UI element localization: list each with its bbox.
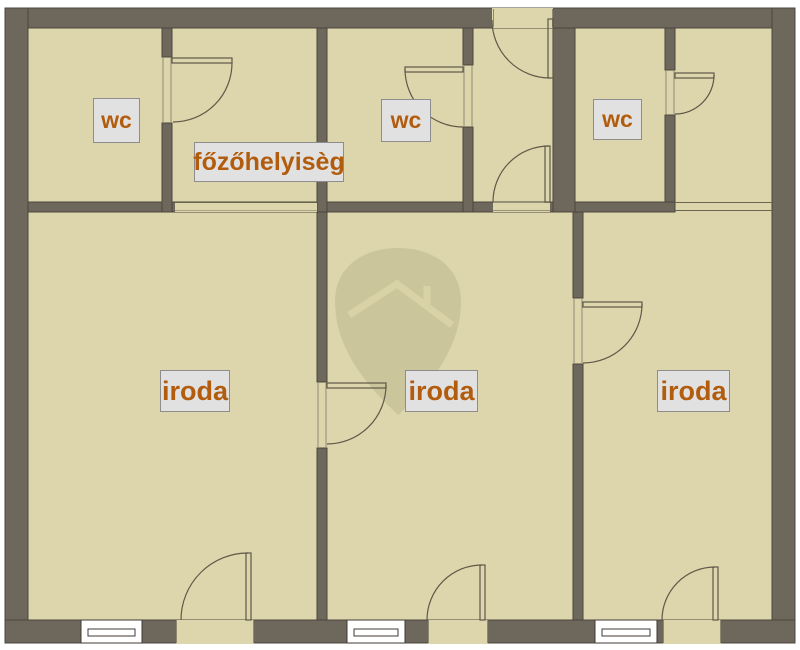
room-label-wc-middle: wc xyxy=(381,99,431,142)
room-label-office-left: iroda xyxy=(160,370,230,412)
room-label-wc-left: wc xyxy=(93,98,140,143)
room-label-wc-right: wc xyxy=(593,99,642,140)
room-label-office-right: iroda xyxy=(657,370,730,412)
room-label-office-middle: iroda xyxy=(405,370,478,412)
floor-plan: wc főzőhelyisèg wc wc iroda iroda iroda xyxy=(0,0,800,650)
room-label-cooking-room: főzőhelyisèg xyxy=(194,142,344,182)
